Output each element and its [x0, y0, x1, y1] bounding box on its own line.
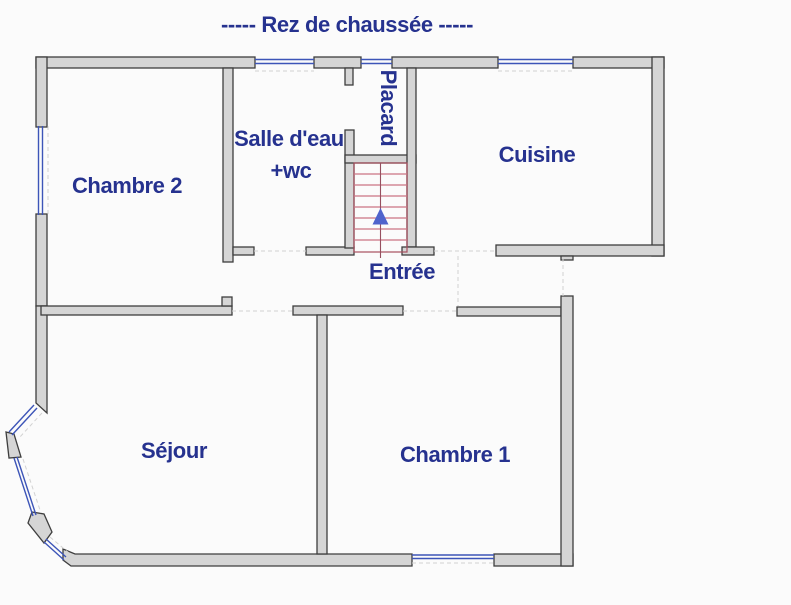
- svg-text:Cuisine: Cuisine: [499, 142, 576, 167]
- svg-text:Salle d'eau: Salle d'eau: [234, 126, 344, 151]
- svg-text:Placard: Placard: [376, 70, 401, 147]
- svg-text:----- Rez de chaussée -----: ----- Rez de chaussée -----: [221, 12, 473, 37]
- svg-text:+wc: +wc: [271, 158, 312, 183]
- svg-text:Entrée: Entrée: [369, 259, 435, 284]
- svg-text:Séjour: Séjour: [141, 438, 208, 463]
- svg-text:Chambre 1: Chambre 1: [400, 442, 510, 467]
- svg-text:Chambre 2: Chambre 2: [72, 173, 182, 198]
